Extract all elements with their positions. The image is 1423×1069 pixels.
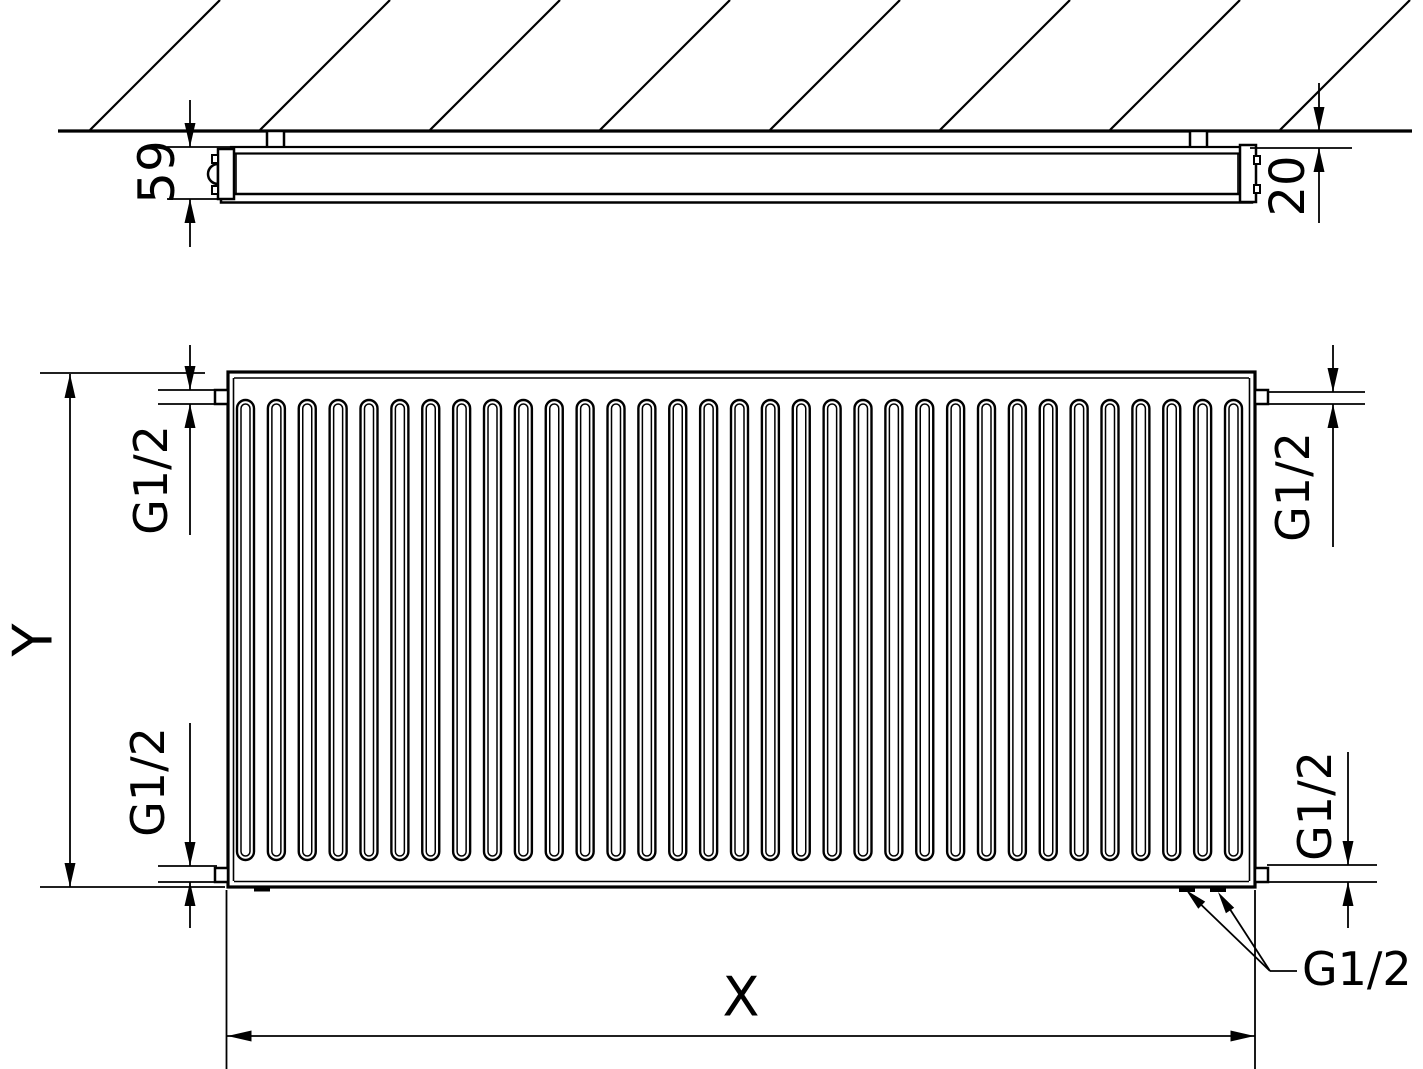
dimension-g12-bottom-right: G1/2 (1267, 751, 1377, 928)
top-view: 59 20 (58, 0, 1412, 247)
g12-bottom-leader-label: G1/2 (1302, 942, 1412, 996)
wall-gap-label: 20 (1260, 155, 1316, 216)
radiator-section (208, 145, 1260, 203)
stub-left-1 (212, 155, 218, 163)
connection-stub-top-left (215, 390, 228, 404)
g12-top-right-label: G1/2 (1266, 432, 1320, 542)
stub-left-2 (212, 186, 218, 194)
bottom-tab-left (254, 887, 270, 892)
bottom-valve-tab-2 (1210, 887, 1226, 893)
mounting-bracket-left (267, 131, 284, 148)
connection-stub-bottom-right (1255, 868, 1268, 882)
dimension-wall-gap: 20 (1250, 83, 1352, 223)
front-view: Y X G1/2 G1/2 (2, 345, 1412, 1069)
end-cap-left (208, 149, 234, 199)
g12-bottom-right-label: G1/2 (1288, 751, 1342, 861)
end-cap-right (1240, 145, 1260, 202)
connection-stub-top-right (1255, 390, 1268, 404)
leader-g12-bottom-connections: G1/2 (1186, 890, 1412, 996)
connection-stub-bottom-left (215, 868, 228, 882)
dimension-g12-bottom-left: G1/2 (121, 723, 217, 928)
depth-label: 59 (128, 140, 186, 204)
convector-fins (236, 154, 1238, 195)
height-label: Y (2, 623, 65, 658)
wall-hatch (90, 0, 1410, 130)
rear-panel-section (231, 147, 1250, 154)
front-panel-section (221, 194, 1252, 203)
mounting-bracket-right (1190, 131, 1207, 148)
radiator-dimension-drawing: 59 20 (0, 0, 1423, 1069)
g12-bottom-left-label: G1/2 (121, 727, 175, 837)
dimension-height-y: Y (2, 373, 226, 887)
g12-top-left-label: G1/2 (124, 425, 178, 535)
dimension-g12-top-right: G1/2 (1266, 345, 1365, 547)
width-label: X (723, 966, 760, 1029)
connection-boss-left (208, 164, 218, 184)
dimension-width-x: X (227, 890, 1256, 1069)
